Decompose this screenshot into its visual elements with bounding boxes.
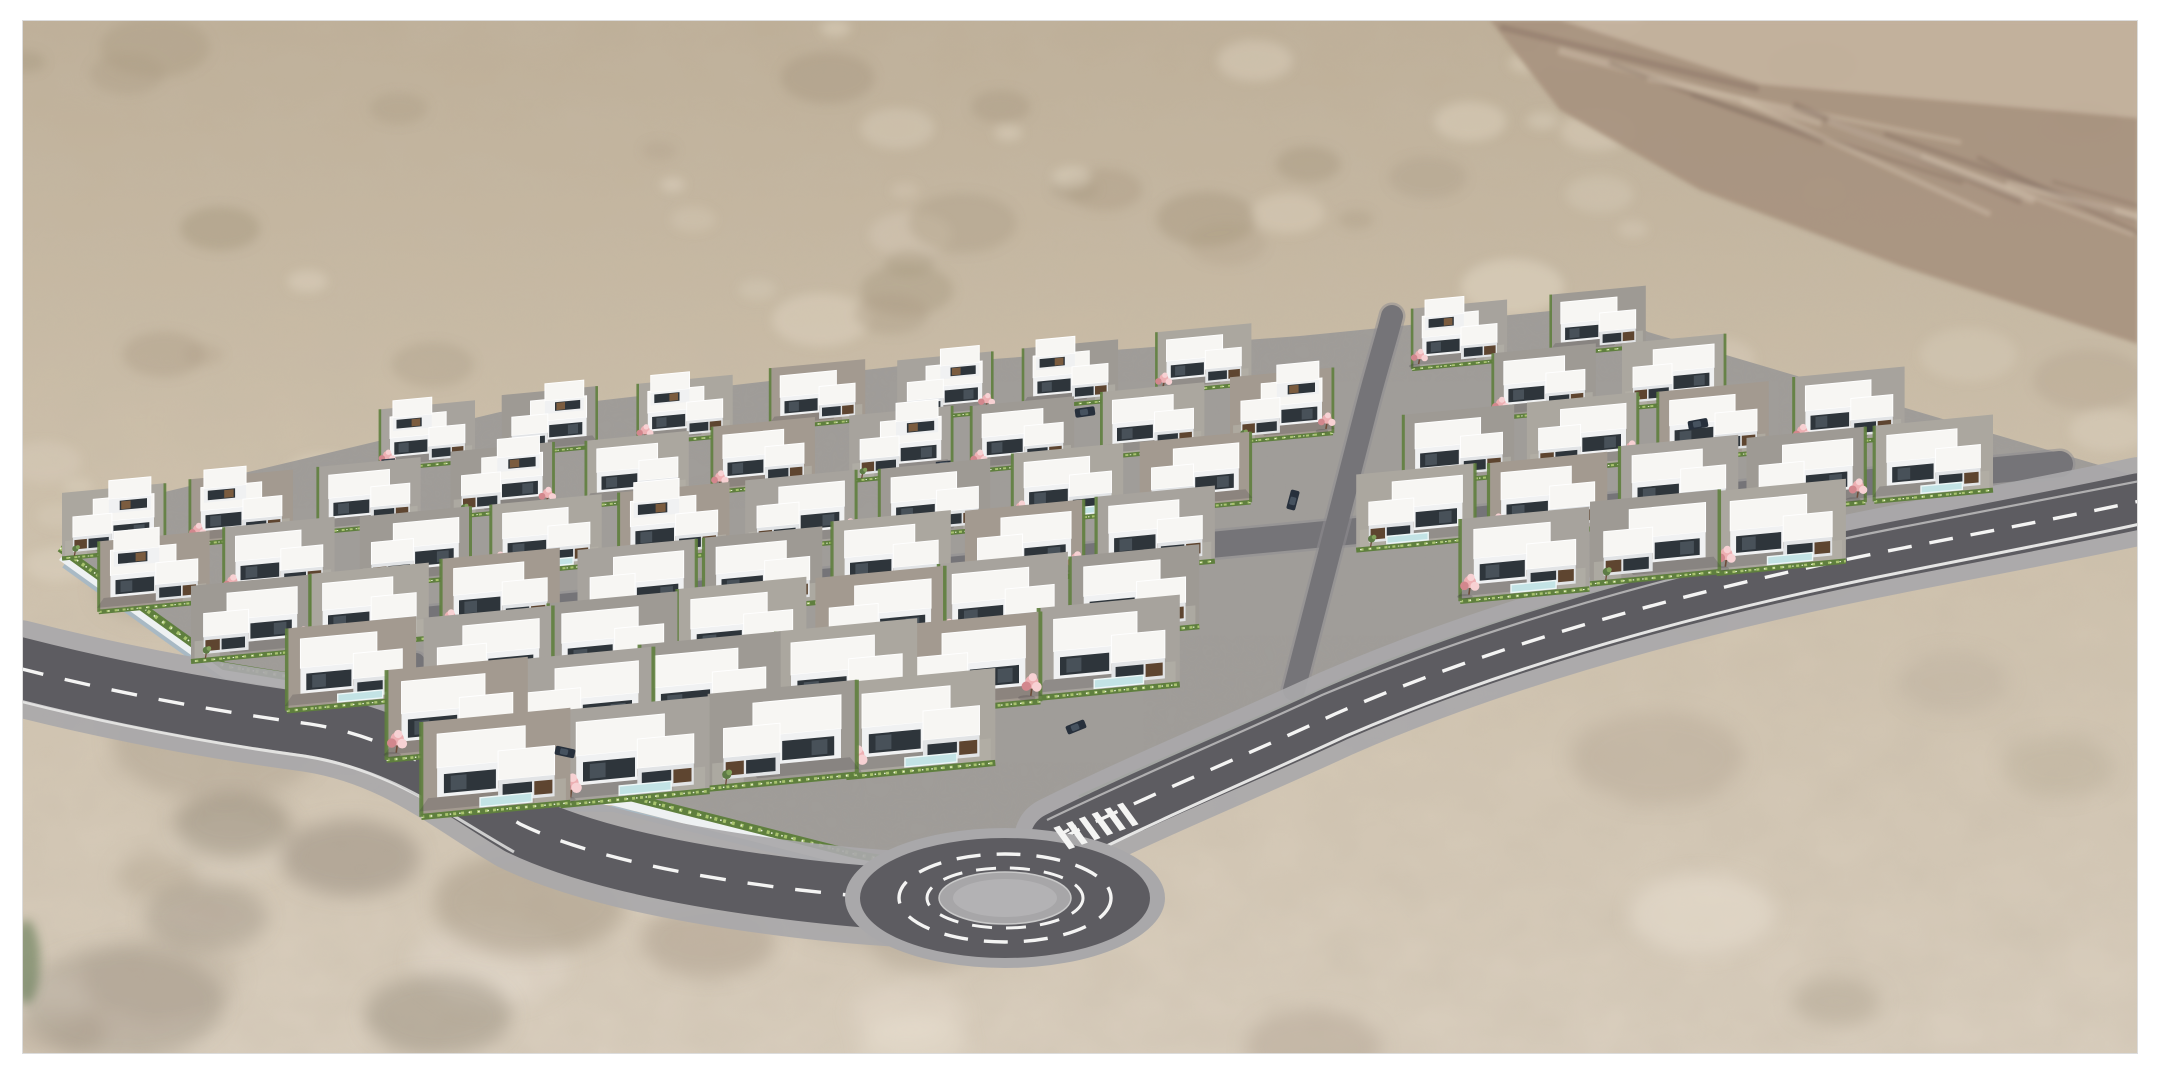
house (1872, 415, 1993, 502)
house (843, 668, 995, 777)
roundabout-island-center (953, 879, 1057, 917)
house (1037, 595, 1180, 698)
architectural-rendering (0, 0, 2160, 1080)
house (1714, 479, 1846, 574)
scene-svg (0, 0, 2160, 1080)
house (1590, 489, 1721, 584)
house (708, 680, 859, 789)
photo-content (0, 0, 2160, 1080)
house (1457, 507, 1589, 602)
roundabout (845, 828, 1165, 968)
house (558, 696, 710, 805)
house (419, 708, 570, 817)
